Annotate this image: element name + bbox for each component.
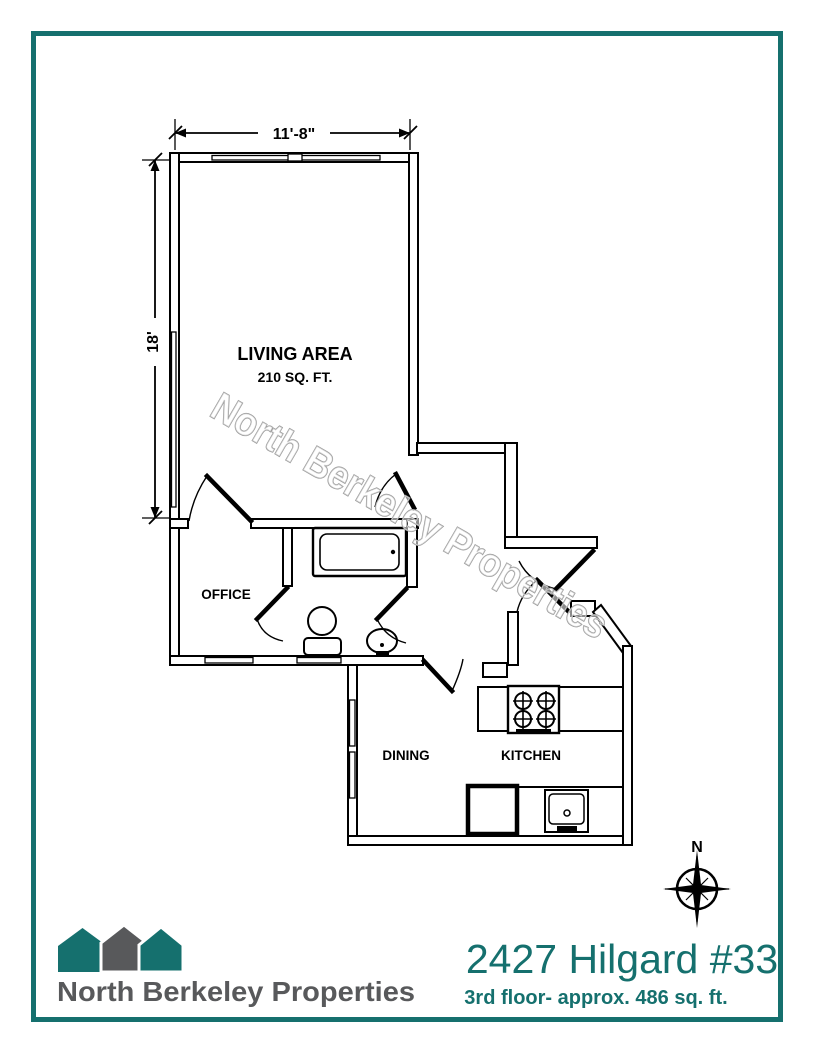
bath-sink-drain (380, 643, 384, 647)
dim-height-arrow-bottom (151, 507, 160, 518)
entry-bottom-wall (505, 537, 597, 548)
bath-sink-icon (367, 629, 397, 653)
living-east-wall (409, 153, 418, 455)
dining-door-leaf (424, 661, 452, 691)
office-entry-door-swing (189, 476, 207, 521)
living-north-window-mullion (288, 154, 302, 161)
dim-width-arrow-right (399, 129, 410, 138)
living-west-window (172, 332, 177, 507)
toilet-tank (304, 638, 341, 655)
address-subtitle: 3rd floor- approx. 486 sq. ft. (464, 987, 727, 1009)
office-bath-wall (283, 528, 292, 586)
office-south-window (205, 658, 253, 664)
living-bottom-wall-a (170, 519, 188, 528)
office-label: OFFICE (201, 587, 251, 602)
dining-west-window-b (350, 752, 356, 798)
toilet-bowl-icon (308, 607, 336, 635)
office-entry-door-leaf (207, 476, 251, 521)
dim-height-arrow-top (151, 160, 160, 171)
bathroom-door-leaf (377, 589, 406, 619)
stove-front-band (516, 729, 551, 734)
company-name-text: North Berkeley Properties (57, 976, 415, 1007)
floor-plan-flyer-page: 11'-8" 18' LIVING AREA 210 SQ. FT. OFFIC… (0, 0, 816, 1056)
living-area-label: LIVING AREA (237, 344, 352, 364)
dining-kitchen-south-wall (348, 836, 632, 845)
refrigerator-icon (468, 786, 517, 834)
entry-top-wall (417, 443, 513, 453)
closet-west-wall (508, 612, 518, 665)
address-title: 2427 Hilgard #33 (466, 936, 778, 982)
kitchen-sink-faucet (557, 826, 577, 832)
bathtub-drain (391, 550, 395, 554)
entry-east-wall (505, 443, 517, 537)
living-area-sqft-label: 210 SQ. FT. (258, 369, 333, 385)
dim-width-arrow-left (175, 129, 186, 138)
compass-needle-ew (663, 885, 731, 894)
bathtub-inner (320, 534, 399, 570)
logo-house-right-icon (139, 927, 183, 972)
dim-width-label: 11'-8" (273, 126, 316, 143)
dining-west-window-a (350, 700, 356, 746)
kitchen-sink-drain (564, 810, 570, 816)
office-hall-door-swing (257, 619, 283, 641)
bath-south-window (297, 658, 341, 664)
kitchen-label: KITCHEN (501, 748, 561, 763)
address-block: 2427 Hilgard #33 3rd floor- approx. 486 … (464, 936, 778, 1009)
kitchen-sink-basin (549, 794, 584, 824)
kitchen-east-wall (623, 646, 632, 845)
dining-label: DINING (382, 748, 429, 763)
office-hall-door-leaf (257, 588, 287, 619)
kitchen-top-box (483, 663, 507, 677)
compass-north-label: N (691, 839, 703, 856)
bath-sink-faucet (376, 651, 389, 656)
dining-door-swing (452, 659, 463, 691)
company-logo: North Berkeley Properties (57, 925, 415, 1007)
dim-height-label: 18' (145, 331, 162, 353)
flyer-canvas: 11'-8" 18' LIVING AREA 210 SQ. FT. OFFIC… (0, 0, 816, 1056)
compass-rose-icon: N (663, 839, 731, 928)
